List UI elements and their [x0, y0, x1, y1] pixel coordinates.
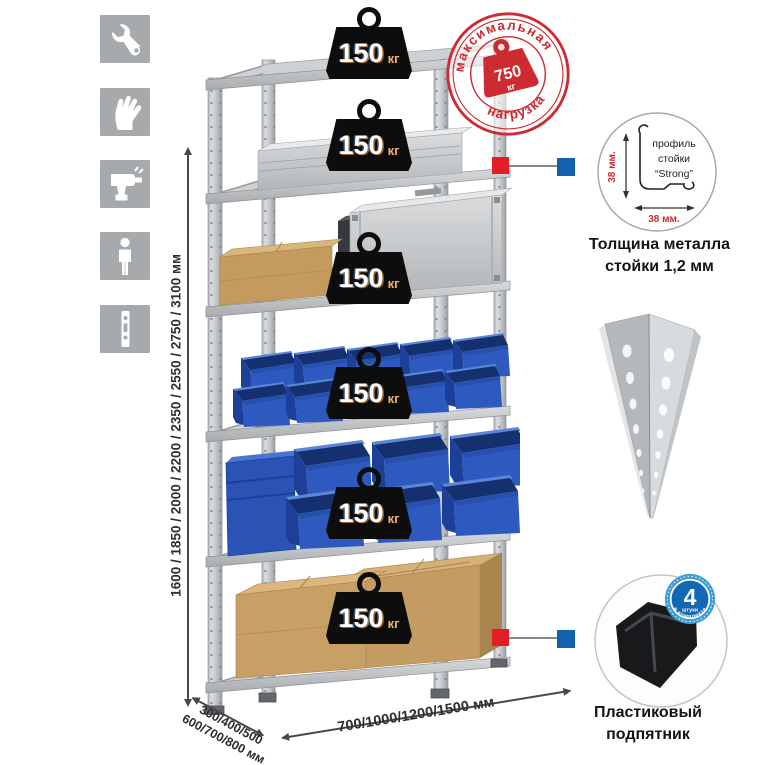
profile-label-3: “Strong” — [655, 168, 693, 180]
shelving-infographic: 1600 / 1850 / 2000 / 2200 / 2350 / 2550 … — [0, 0, 765, 765]
rack-post-icon — [100, 305, 150, 353]
profile-label-1: профиль — [652, 138, 696, 150]
profile-dim-horizontal: 38 мм. — [648, 214, 680, 225]
profile-detail-circle: 38 мм. 38 мм. профиль стойки “Strong” — [596, 111, 718, 233]
callout-line-bottom — [509, 637, 557, 639]
height-dimension-line — [187, 154, 189, 700]
foot-caption-line1: Пластиковый — [573, 702, 723, 724]
angle-post-image — [597, 303, 701, 525]
foot-caption-line2: подпятник — [573, 724, 723, 746]
profile-label-2: стойки — [658, 153, 690, 165]
load-badge-6: 150кг — [326, 572, 412, 644]
foot-caption: Пластиковый подпятник — [573, 702, 723, 745]
callout-red-square-bottom — [492, 629, 509, 646]
rack-post-glyph — [105, 307, 145, 351]
gloves-icon — [100, 88, 150, 136]
callout-red-square-top — [492, 157, 509, 174]
callout-blue-square-top — [557, 158, 575, 176]
person-icon — [100, 232, 150, 280]
load-badge-1: 150кг — [326, 7, 412, 79]
profile-caption-line1: Толщина металла — [577, 234, 742, 256]
cardboard-box-shelf3 — [220, 239, 342, 305]
load-badge-3: 150кг — [326, 232, 412, 304]
profile-caption-line2: стойки 1,2 мм — [577, 256, 742, 278]
profile-dim-vertical: 38 мм. — [607, 151, 618, 183]
drill-glyph — [105, 162, 145, 206]
wrench-icon — [100, 15, 150, 63]
person-glyph — [105, 234, 145, 278]
qty-badge: 4 штуки в комплекте — [663, 572, 717, 626]
drill-icon — [100, 160, 150, 208]
callout-line-top — [509, 165, 557, 167]
load-badge-5: 150кг — [326, 467, 412, 539]
wrench-glyph — [105, 17, 145, 61]
qty-badge-value: 4 — [684, 584, 697, 610]
height-dimension-label: 1600 / 1850 / 2000 / 2200 / 2350 / 2550 … — [169, 165, 186, 685]
load-badge-2: 150кг — [326, 99, 412, 171]
qty-badge-word: штуки — [682, 608, 698, 614]
profile-caption: Толщина металла стойки 1,2 мм — [577, 234, 742, 277]
load-badge-4: 150кг — [326, 347, 412, 419]
gloves-glyph — [105, 90, 145, 134]
callout-blue-square-bottom — [557, 630, 575, 648]
